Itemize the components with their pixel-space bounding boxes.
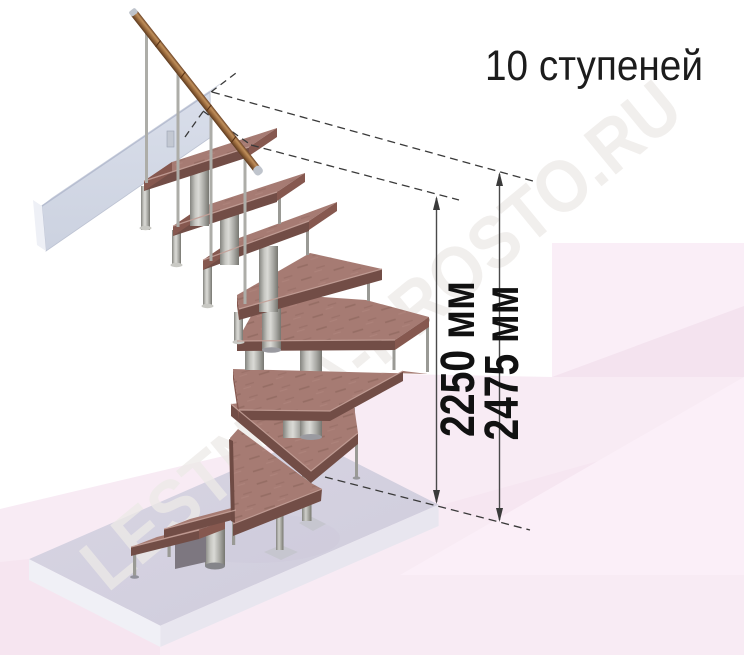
svg-text:2475 мм: 2475 мм bbox=[476, 286, 529, 441]
svg-text:10 ступеней: 10 ступеней bbox=[485, 42, 703, 90]
